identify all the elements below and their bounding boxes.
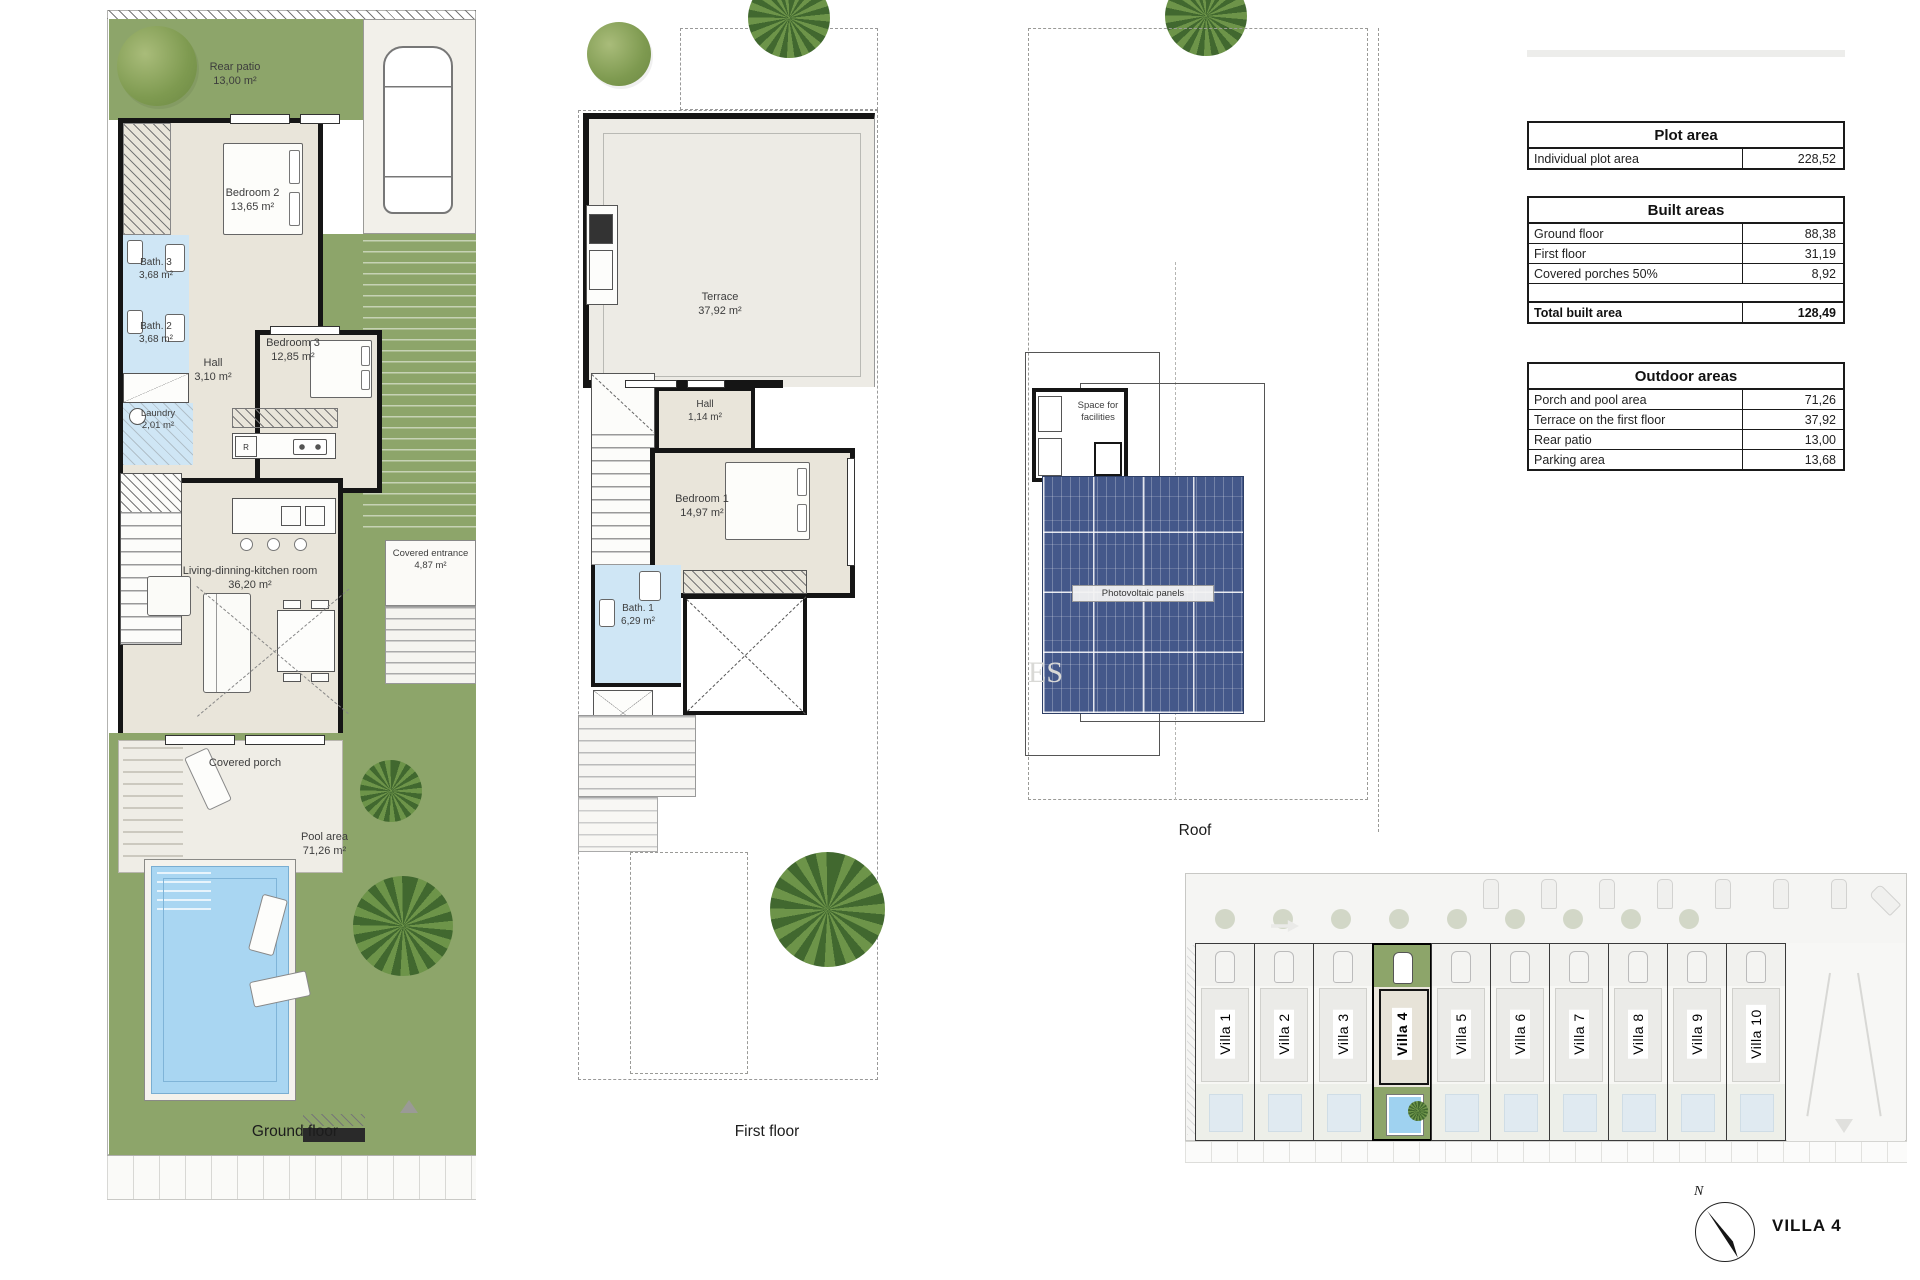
car-icon — [1569, 951, 1589, 983]
shower — [123, 373, 189, 403]
room-label: Space for facilities — [1060, 400, 1136, 425]
car-icon — [1333, 951, 1353, 983]
car-icon — [1451, 951, 1471, 983]
car-icon — [1541, 879, 1557, 909]
kitchen-closet — [232, 408, 338, 428]
villa-label: Villa 6 — [1510, 1009, 1530, 1058]
table-title: Outdoor areas — [1529, 364, 1843, 390]
table-row: Rear patio13,00 — [1529, 430, 1843, 450]
entrance-arrow-icon — [400, 1100, 418, 1113]
room-label: Bath. 16,29 m² — [603, 602, 673, 628]
room-label: Hall3,10 m² — [183, 356, 243, 385]
site-villa-strip: Villa 5 — [1431, 943, 1491, 1141]
site-villa-strip: Villa 3 — [1313, 943, 1373, 1141]
table-title: Built areas — [1529, 198, 1843, 224]
tree-icon — [1389, 909, 1409, 929]
stool-icon — [267, 538, 280, 551]
car-icon — [383, 46, 453, 214]
window — [625, 380, 677, 388]
pillow-icon — [289, 150, 300, 184]
room-label: Bath. 23,68 m² — [125, 320, 187, 346]
tree-icon — [1621, 909, 1641, 929]
pv-label: Photovoltaic panels — [1072, 585, 1214, 602]
equipment-icon — [1038, 396, 1062, 432]
tree-icon — [1505, 909, 1525, 929]
palm-tree-icon — [360, 760, 422, 822]
entrance-steps — [385, 606, 476, 684]
room-label: Laundry2,01 m² — [125, 408, 191, 433]
driveway-arrow-icon — [1835, 1119, 1853, 1133]
car-icon — [1657, 879, 1673, 909]
site-villa-strip-highlighted: Villa 4 — [1372, 943, 1432, 1141]
sink-icon — [589, 250, 613, 290]
site-villa-strip: Villa 8 — [1608, 943, 1668, 1141]
car-icon — [1510, 951, 1530, 983]
site-plan: Villa 1 Villa 2 Villa 3 Villa 4 Villa 5 … — [1185, 865, 1915, 1175]
room-label: Bedroom 114,97 m² — [647, 492, 757, 521]
railing-hatch — [683, 570, 807, 594]
plan-caption: First floor — [687, 1123, 847, 1141]
car-icon — [1628, 951, 1648, 983]
fridge-icon: R — [235, 436, 257, 457]
boundary-dashed-line — [1378, 28, 1379, 832]
driveway-line — [1806, 973, 1831, 1117]
sidewalk — [107, 1155, 476, 1200]
chair-icon — [283, 673, 301, 682]
first-floor-plan: Terrace37,92 m² Hall1,14 m² Bedroom 114,… — [575, 0, 897, 1160]
window — [270, 326, 340, 335]
architectural-plan-sheet: { "ground_floor": { "caption": "Ground f… — [0, 0, 1920, 1280]
under-stair-storage — [121, 474, 181, 512]
car-icon — [1483, 879, 1499, 909]
room-label: Living-dinning-kitchen room36,20 m² — [160, 564, 340, 593]
car-icon — [1831, 879, 1847, 909]
table-row: First floor31,19 — [1529, 244, 1843, 264]
table-spacer-row — [1529, 284, 1843, 302]
site-villa-strip: Villa 1 — [1195, 943, 1255, 1141]
window — [230, 114, 290, 124]
window — [245, 735, 325, 745]
villa-label: Villa 10 — [1746, 1005, 1766, 1063]
exterior-steps — [578, 797, 658, 852]
compass-icon — [1695, 1202, 1755, 1262]
room-label: Terrace37,92 m² — [645, 290, 795, 319]
edge-hatch — [1187, 945, 1195, 1135]
car-icon — [1599, 879, 1615, 909]
sheet-title: VILLA 4 — [1772, 1216, 1842, 1236]
table-row: Terrace on the first floor37,92 — [1529, 410, 1843, 430]
car-icon — [1746, 951, 1766, 983]
villa-label: Villa 9 — [1687, 1009, 1707, 1058]
driveway — [1787, 943, 1905, 1141]
kitchen-island — [232, 498, 336, 534]
pillow-icon — [361, 370, 370, 390]
closet — [1094, 442, 1122, 476]
room-label: Bedroom 312,85 m² — [253, 336, 333, 365]
site-villa-strip: Villa 2 — [1254, 943, 1314, 1141]
toilet-icon — [639, 571, 661, 601]
villa-label: Villa 8 — [1628, 1009, 1648, 1058]
villa-label: Villa 3 — [1333, 1009, 1353, 1058]
car-icon — [1715, 879, 1731, 909]
car-icon — [1215, 951, 1235, 983]
table-row: Porch and pool area71,26 — [1529, 390, 1843, 410]
room-label: Hall1,14 m² — [665, 398, 745, 424]
palm-tree-icon — [353, 876, 453, 976]
terrace-inner-line — [603, 133, 861, 377]
plot-area-table: Plot area Individual plot area228,52 — [1527, 121, 1845, 170]
room-label: Covered porch — [190, 756, 300, 770]
stove-icon — [293, 439, 327, 455]
tree-icon — [1679, 909, 1699, 929]
tree-icon — [1215, 909, 1235, 929]
boundary-wall-hatch — [107, 10, 476, 19]
table-row: Individual plot area228,52 — [1529, 149, 1843, 168]
room-label: Rear patio13,00 m² — [185, 60, 285, 89]
table-row: Ground floor88,38 — [1529, 224, 1843, 244]
equipment-icon — [1038, 438, 1062, 476]
pillow-icon — [797, 504, 807, 532]
north-label: N — [1694, 1184, 1703, 1200]
site-villa-strip: Villa 10 — [1726, 943, 1786, 1141]
stool-icon — [240, 538, 253, 551]
villa-label: Villa 5 — [1451, 1009, 1471, 1058]
window — [687, 380, 725, 388]
compass-needle — [1701, 1205, 1749, 1258]
street-sidewalk — [1185, 1141, 1907, 1163]
pool-dashed-outline — [630, 852, 748, 1074]
window — [847, 458, 855, 566]
ground-floor-plan: R Rear patio13,00 m² Bedroom 213,65 m² — [105, 8, 480, 1200]
sink-icon — [305, 506, 325, 526]
window — [300, 114, 340, 124]
table-row: Parking area13,68 — [1529, 450, 1843, 469]
car-icon — [1773, 879, 1789, 909]
staircase — [120, 473, 182, 645]
roof-plan: Space for facilities Photovoltaic panels… — [1020, 0, 1420, 900]
watermark: ES — [1028, 656, 1063, 690]
void-cross-line — [686, 599, 805, 714]
table-total-row: Total built area128,49 — [1529, 302, 1843, 322]
room-label: Bath. 33,68 m² — [125, 256, 187, 282]
pillow-icon — [361, 346, 370, 366]
table-row: Covered porches 50%8,92 — [1529, 264, 1843, 284]
outdoor-areas-table: Outdoor areas Porch and pool area71,26 T… — [1527, 362, 1845, 471]
window — [165, 735, 235, 745]
terrace-kitchenette — [586, 205, 618, 305]
chair-icon — [283, 600, 301, 609]
car-icon — [1393, 952, 1413, 984]
villa-label: Villa 2 — [1274, 1009, 1294, 1058]
stool-icon — [294, 538, 307, 551]
villa-label: Villa 4 — [1392, 1008, 1412, 1060]
table-title: Plot area — [1529, 123, 1843, 149]
bbq-icon — [589, 214, 613, 244]
car-icon — [1687, 951, 1707, 983]
room-label: Bedroom 213,65 m² — [205, 186, 300, 215]
porch-decking — [123, 747, 183, 867]
sink-icon — [281, 506, 301, 526]
villa-label: Villa 7 — [1569, 1009, 1589, 1058]
tree-icon — [587, 22, 651, 86]
palm-tree-icon — [1408, 1101, 1428, 1121]
exterior-steps — [578, 715, 696, 797]
void-cross-line — [687, 596, 806, 711]
void-shaft — [683, 595, 807, 715]
driveway-line — [1857, 973, 1882, 1117]
site-villa-strip: Villa 7 — [1549, 943, 1609, 1141]
chair-icon — [311, 673, 329, 682]
tree-icon — [1563, 909, 1583, 929]
car-icon — [1274, 951, 1294, 983]
logo-placeholder-bar — [1527, 50, 1845, 57]
wardrobe — [123, 123, 171, 235]
villa-label: Villa 1 — [1215, 1009, 1235, 1058]
room-label: Pool area71,26 m² — [277, 830, 372, 859]
tree-icon — [1447, 909, 1467, 929]
kitchen-counter: R — [232, 433, 336, 459]
site-villa-strip: Villa 6 — [1490, 943, 1550, 1141]
site-villa-strip: Villa 9 — [1667, 943, 1727, 1141]
terrace — [583, 113, 875, 387]
pillow-icon — [797, 468, 807, 496]
built-areas-table: Built areas Ground floor88,38 First floo… — [1527, 196, 1845, 324]
plan-caption: Ground floor — [215, 1123, 375, 1141]
tree-icon — [1331, 909, 1351, 929]
room-label: Covered entrance4,87 m² — [387, 548, 474, 573]
plan-caption: Roof — [1120, 822, 1270, 840]
palm-tree-icon — [770, 852, 885, 967]
